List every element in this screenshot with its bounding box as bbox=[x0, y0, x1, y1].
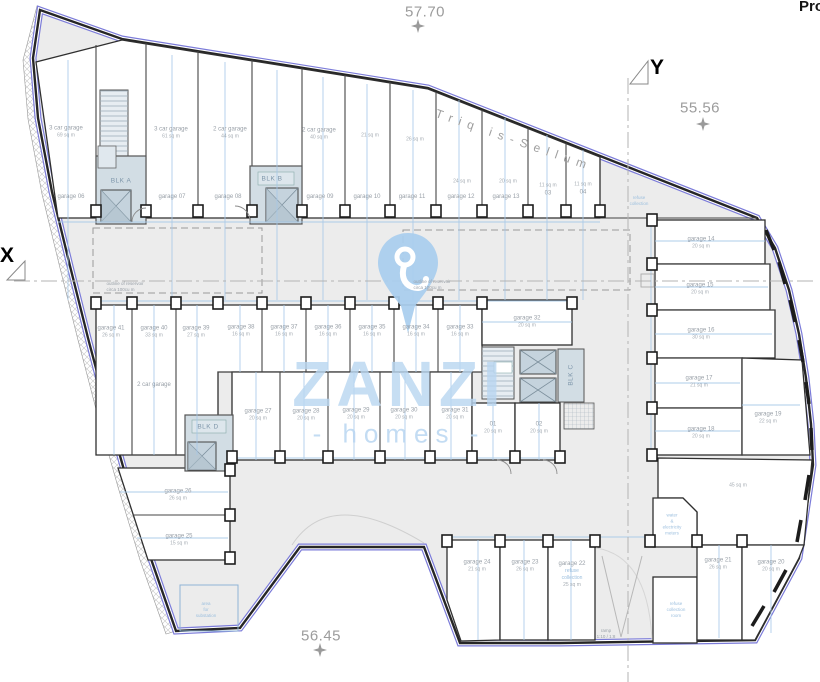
note-reservoir-right: outline of reservoir circa 100cu m bbox=[413, 279, 450, 291]
room-label-garage-11: garage 11 bbox=[399, 193, 426, 201]
y-axis-label: Y bbox=[650, 56, 664, 80]
room-label-garage-14: garage 1420 sq m bbox=[687, 236, 714, 251]
room-label-garage-26: garage 2626 sq m bbox=[164, 488, 191, 503]
room-label-garage-28: garage 2820 sq m bbox=[292, 408, 319, 423]
floor-plan-page: ZANZI - homes - Pro 57.70 55.56 56.45 Tr… bbox=[0, 0, 820, 682]
room-label-garage-31: garage 3120 sq m bbox=[441, 407, 468, 422]
room-label-04: 11 sq m04 bbox=[574, 182, 591, 197]
watermark-tagline: - homes - bbox=[313, 419, 486, 450]
note-substation: area for substation bbox=[196, 601, 217, 619]
y-axis-arrow bbox=[630, 61, 648, 84]
room-label-garage-06: garage 06 bbox=[57, 193, 84, 201]
room-label-garage-35: garage 3516 sq m bbox=[358, 324, 385, 339]
room-label-garage-24: garage 2421 sq m bbox=[463, 559, 490, 574]
room-label-garage-09-type: 2 car garage40 sq m bbox=[302, 127, 336, 142]
room-label-garage-09: garage 09 bbox=[306, 193, 333, 201]
room-label-garage-13: garage 13 bbox=[492, 193, 519, 201]
block-b-label: BLK B bbox=[262, 176, 283, 183]
note-ramp: ramp 1:10 / 1:8 bbox=[597, 628, 616, 640]
room-label-garage-15: garage 1520 sq m bbox=[686, 282, 713, 297]
room-label-garage-27: garage 2720 sq m bbox=[244, 408, 271, 423]
note-open-area: 45 sq m bbox=[729, 483, 747, 490]
room-label-garage-34: garage 3416 sq m bbox=[402, 324, 429, 339]
block-c-label: BLK C bbox=[568, 364, 575, 385]
room-label-garage-29: garage 2920 sq m bbox=[342, 407, 369, 422]
room-label-garage-16: garage 1630 sq m bbox=[687, 327, 714, 342]
room-label-garage-13-area: 20 sq m bbox=[499, 179, 517, 186]
room-label-garage-11-area: 26 sq m bbox=[406, 137, 424, 144]
note-refuse-collection-top: refuse collection bbox=[630, 195, 649, 207]
room-label-garage-12-area: 24 sq m bbox=[453, 179, 471, 186]
room-label-garage-10: garage 10 bbox=[353, 193, 380, 201]
x-axis-label: X bbox=[0, 244, 14, 268]
room-label-03: 11 sq m03 bbox=[539, 183, 556, 198]
room-label-garage-32: garage 3220 sq m bbox=[513, 315, 540, 330]
room-label-garage-40-type: 2 car garage bbox=[137, 381, 171, 389]
room-label-garage-12: garage 12 bbox=[447, 193, 474, 201]
room-label-garage-40: garage 4033 sq m bbox=[140, 325, 167, 340]
room-label-garage-33: garage 3316 sq m bbox=[446, 324, 473, 339]
room-label-garage-37: garage 3716 sq m bbox=[270, 324, 297, 339]
room-label-garage-10-area: 21 sq m bbox=[361, 133, 379, 140]
level-bottom: 56.45 bbox=[301, 628, 341, 645]
room-label-garage-08: garage 08 bbox=[214, 193, 241, 201]
room-label-garage-07-type: 3 car garage61 sq m bbox=[154, 126, 188, 141]
room-label-garage-17: garage 1721 sq m bbox=[685, 375, 712, 390]
room-label-garage-39: garage 3927 sq m bbox=[182, 325, 209, 340]
room-label-garage-25: garage 2515 sq m bbox=[165, 533, 192, 548]
room-label-02: 0220 sq m bbox=[530, 421, 548, 436]
room-label-garage-08-type: 2 car garage44 sq m bbox=[213, 126, 247, 141]
level-top: 57.70 bbox=[405, 4, 445, 21]
room-label-garage-22: garage 22refuse collection25 sq m bbox=[558, 560, 585, 588]
room-label-garage-18: garage 1820 sq m bbox=[687, 426, 714, 441]
page-corner-text: Pro bbox=[799, 0, 820, 15]
room-label-garage-30: garage 3020 sq m bbox=[390, 407, 417, 422]
room-label-garage-23: garage 2326 sq m bbox=[511, 559, 538, 574]
room-label-garage-38: garage 3816 sq m bbox=[227, 324, 254, 339]
room-label-garage-06-type: 3 car garage69 sq m bbox=[49, 125, 83, 140]
room-label-garage-07: garage 07 bbox=[158, 193, 185, 201]
note-reservoir-left: outline of reservoir circa 100cu m bbox=[106, 281, 143, 293]
note-water-meters: water & electricity meters bbox=[663, 512, 682, 535]
room-label-garage-36: garage 3616 sq m bbox=[314, 324, 341, 339]
room-label-garage-20: garage 2020 sq m bbox=[757, 559, 784, 574]
room-label-01: 0120 sq m bbox=[484, 421, 502, 436]
room-label-garage-21: garage 2126 sq m bbox=[704, 557, 731, 572]
block-d-label: BLK D bbox=[197, 424, 218, 431]
room-label-garage-19: garage 1922 sq m bbox=[754, 411, 781, 426]
note-refuse-room: refuse collection room bbox=[667, 601, 686, 619]
block-a-label: BLK A bbox=[111, 178, 132, 185]
level-right: 55.56 bbox=[680, 100, 720, 117]
room-label-garage-41: garage 4126 sq m bbox=[97, 325, 124, 340]
